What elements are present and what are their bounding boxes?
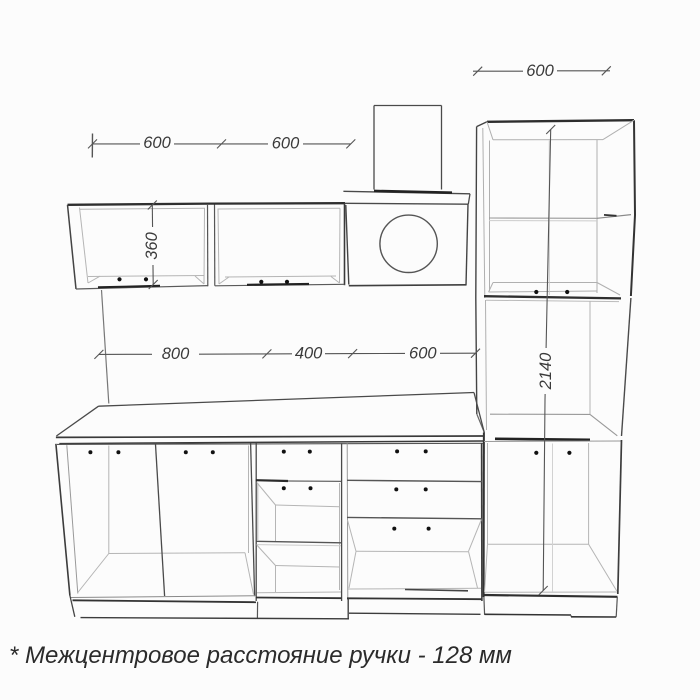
svg-text:360: 360: [143, 231, 161, 259]
svg-text:600: 600: [409, 344, 437, 362]
svg-text:600: 600: [526, 62, 554, 80]
svg-text:400: 400: [295, 345, 323, 363]
svg-text:800: 800: [162, 345, 190, 363]
svg-text:* Межцентровое расстояние ручк: * Межцентровое расстояние ручки - 128 мм: [9, 642, 512, 669]
svg-text:600: 600: [143, 134, 171, 152]
svg-text:2140: 2140: [537, 352, 555, 391]
svg-text:600: 600: [272, 135, 300, 153]
